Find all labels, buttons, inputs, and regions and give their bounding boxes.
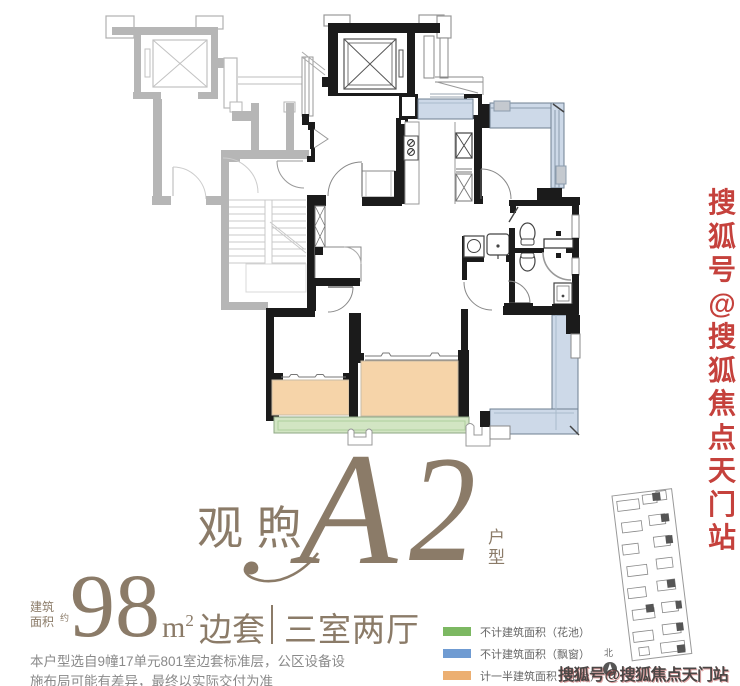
svg-text:北: 北 xyxy=(604,648,613,658)
